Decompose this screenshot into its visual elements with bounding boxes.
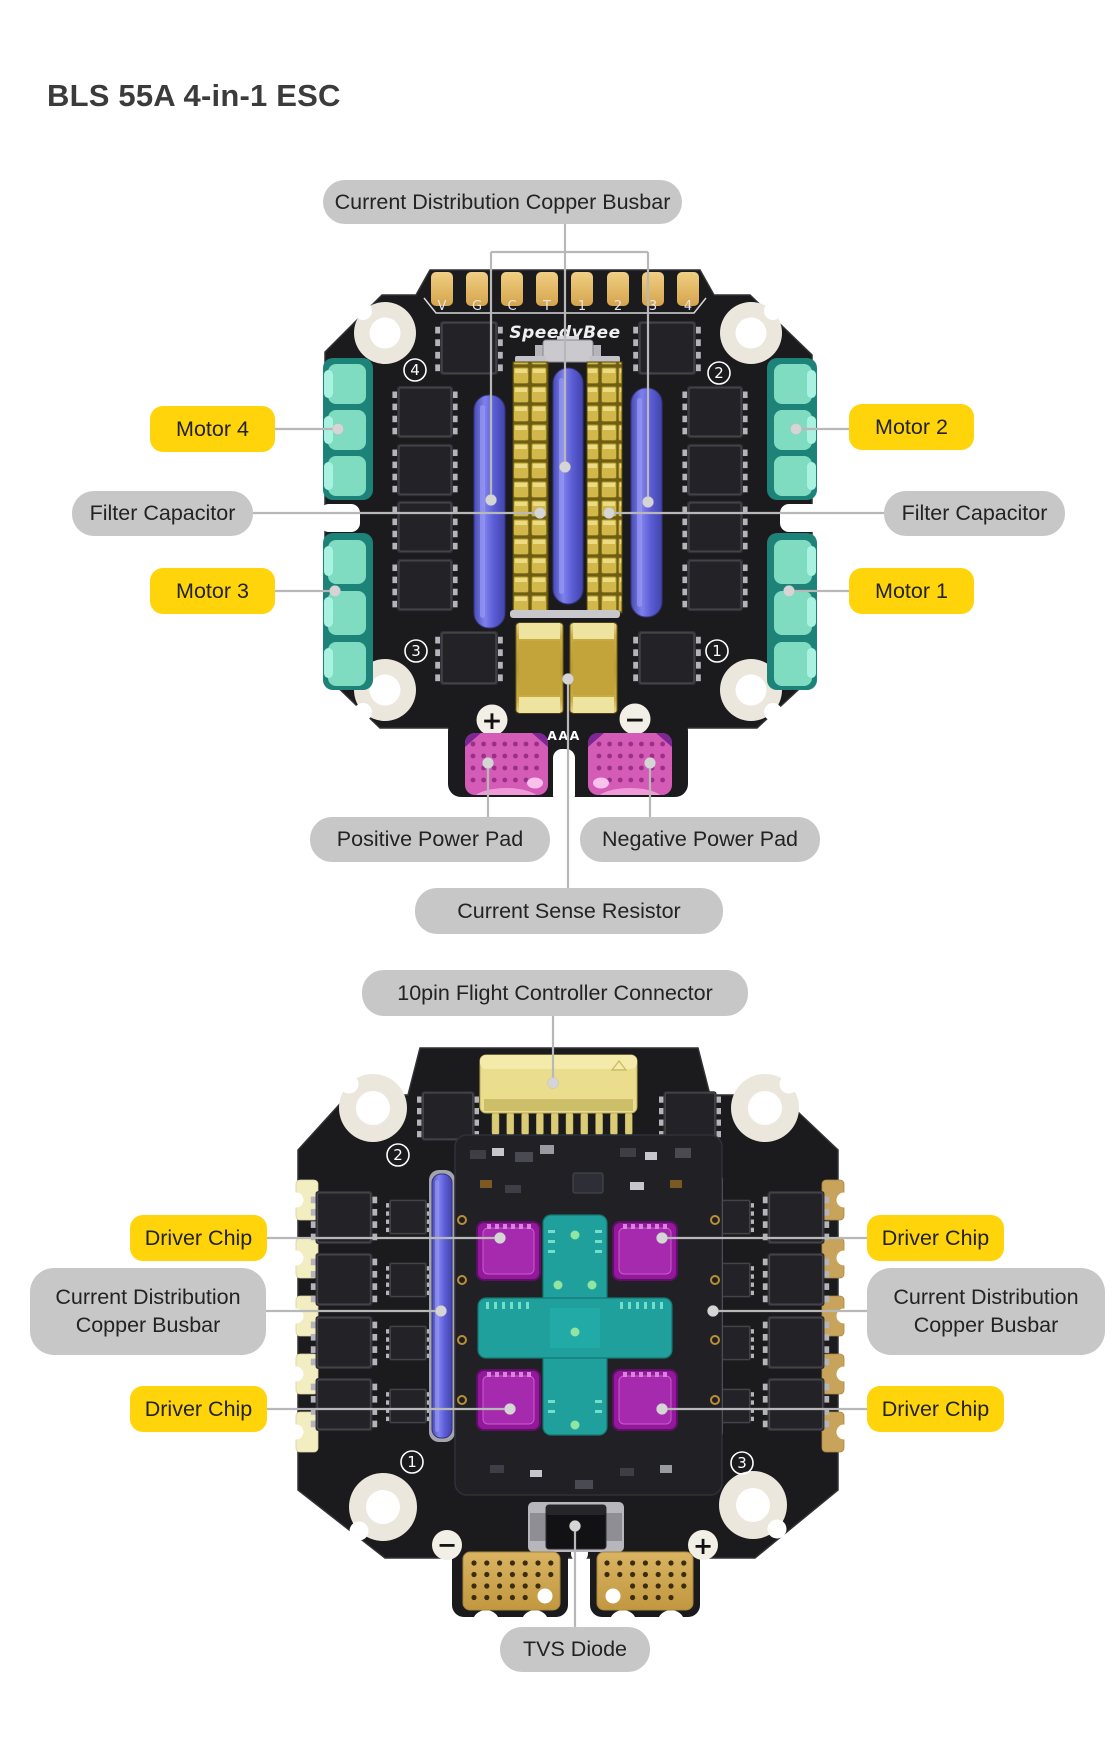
callout-busbar-right: Current Distribution Copper Busbar	[867, 1268, 1105, 1355]
svg-text:V: V	[438, 299, 447, 314]
svg-text:2: 2	[714, 364, 724, 382]
callout-motor-4: Motor 4	[150, 406, 275, 452]
esc-back-board-illustration: 2 4 1 3	[290, 1040, 850, 1630]
svg-text:−: −	[625, 705, 646, 734]
callout-motor-1: Motor 1	[849, 568, 974, 614]
svg-text:C: C	[507, 299, 516, 314]
svg-text:−: −	[437, 1531, 457, 1559]
callout-filter-capacitor-left: Filter Capacitor	[72, 491, 253, 536]
callout-current-distribution-busbar-top: Current Distribution Copper Busbar	[323, 180, 682, 224]
svg-text:1: 1	[407, 1453, 417, 1471]
callout-motor-3: Motor 3	[150, 568, 275, 614]
svg-text:+: +	[693, 1532, 713, 1560]
svg-text:2: 2	[393, 1146, 403, 1164]
copper-busbars	[474, 368, 662, 628]
motor-connector-4	[323, 358, 373, 500]
callout-10pin-fc-connector: 10pin Flight Controller Connector	[362, 970, 748, 1016]
svg-text:G: G	[472, 299, 482, 314]
callout-driver-chip-bottom-left: Driver Chip	[130, 1386, 267, 1432]
svg-text:1: 1	[578, 299, 586, 314]
svg-text:2: 2	[614, 299, 622, 314]
callout-positive-power-pad: Positive Power Pad	[310, 817, 550, 862]
callout-negative-power-pad: Negative Power Pad	[580, 817, 820, 862]
svg-text:3: 3	[737, 1454, 747, 1472]
tvs-diode-component	[528, 1502, 624, 1552]
svg-text:T: T	[542, 299, 551, 314]
motor-connector-3	[323, 533, 373, 690]
callout-motor-2: Motor 2	[849, 404, 974, 450]
positive-power-pad-copper	[465, 733, 548, 802]
callout-current-sense-resistor: Current Sense Resistor	[415, 888, 723, 934]
svg-text:4: 4	[684, 299, 692, 314]
esc-front-board-illustration: V G C T 1 2 3 4 SpeedyBee 4 2 3 1	[320, 252, 820, 802]
page-title: BLS 55A 4-in-1 ESC	[47, 78, 341, 114]
callout-driver-chip-top-left: Driver Chip	[130, 1215, 267, 1261]
callout-driver-chip-top-right: Driver Chip	[867, 1215, 1004, 1261]
svg-text:1: 1	[712, 642, 722, 660]
negative-power-pad-copper	[588, 733, 672, 802]
shunt-marking: AAA	[547, 728, 581, 743]
callout-tvs-diode: TVS Diode	[500, 1627, 650, 1672]
svg-text:+: +	[482, 706, 503, 735]
motor-connector-1	[767, 533, 817, 690]
page: { "title": "BLS 55A 4-in-1 ESC", "colors…	[0, 0, 1117, 1758]
svg-text:3: 3	[649, 299, 657, 314]
svg-text:3: 3	[411, 642, 421, 660]
callout-filter-capacitor-right: Filter Capacitor	[884, 491, 1065, 536]
svg-text:4: 4	[410, 361, 420, 379]
motor-connector-2	[767, 358, 817, 500]
callout-driver-chip-bottom-right: Driver Chip	[867, 1386, 1004, 1432]
callout-busbar-left: Current Distribution Copper Busbar	[30, 1268, 266, 1355]
